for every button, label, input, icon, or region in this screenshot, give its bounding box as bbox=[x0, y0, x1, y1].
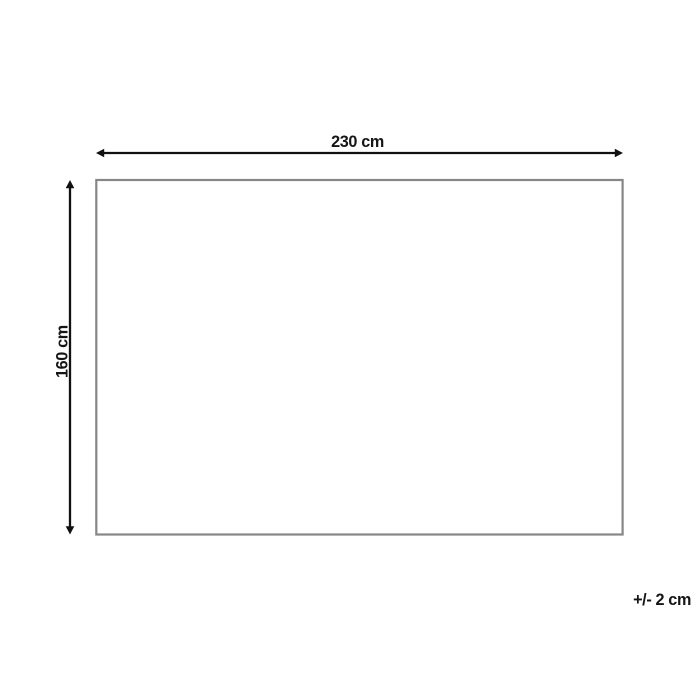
svg-text:+/- 2 cm: +/- 2 cm bbox=[633, 591, 691, 609]
svg-text:160 cm: 160 cm bbox=[53, 325, 71, 378]
svg-text:230 cm: 230 cm bbox=[331, 133, 384, 151]
